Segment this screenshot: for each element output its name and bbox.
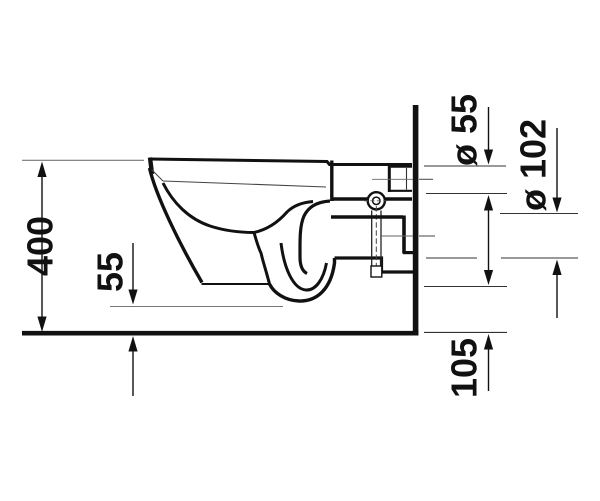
bowl-inner-front-edge — [163, 183, 254, 233]
toilet-section — [149, 158, 413, 302]
trap-inner-curve — [281, 243, 327, 290]
dim-55-label: 55 — [90, 252, 131, 292]
toilet-dimension-drawing: 400 55 ø 55 ø 102 105 — [0, 0, 600, 501]
dim-400-label: 400 — [20, 216, 61, 276]
flush-pipe-foot — [371, 266, 382, 277]
seat-underside-line — [163, 181, 326, 187]
dim-105-label: 105 — [444, 338, 485, 398]
extension-lines — [419, 166, 578, 287]
trap-front-wall — [254, 233, 270, 285]
dimension-105: 105 — [444, 270, 494, 398]
dia55-arrow-down — [484, 150, 493, 165]
dia102-label: ø 102 — [513, 119, 554, 211]
dimension-55: 55 — [90, 243, 284, 396]
dim-400-arrow-up — [37, 162, 46, 178]
building-structure — [22, 105, 507, 335]
dim-400-arrow-down — [37, 317, 46, 333]
dia102-arrow-down — [552, 198, 561, 213]
dim-105-arrow-down — [484, 270, 493, 285]
trap-weir-wall — [300, 201, 330, 274]
dimension-dia-55: ø 55 — [444, 94, 494, 277]
dimension-dia-102: ø 102 — [513, 119, 562, 318]
dia55-label: ø 55 — [444, 94, 485, 166]
seat-lid-top-line — [149, 159, 412, 165]
technical-drawing-canvas: 400 55 ø 55 ø 102 105 — [0, 0, 600, 501]
bowl-front-outer-edge — [150, 168, 203, 283]
